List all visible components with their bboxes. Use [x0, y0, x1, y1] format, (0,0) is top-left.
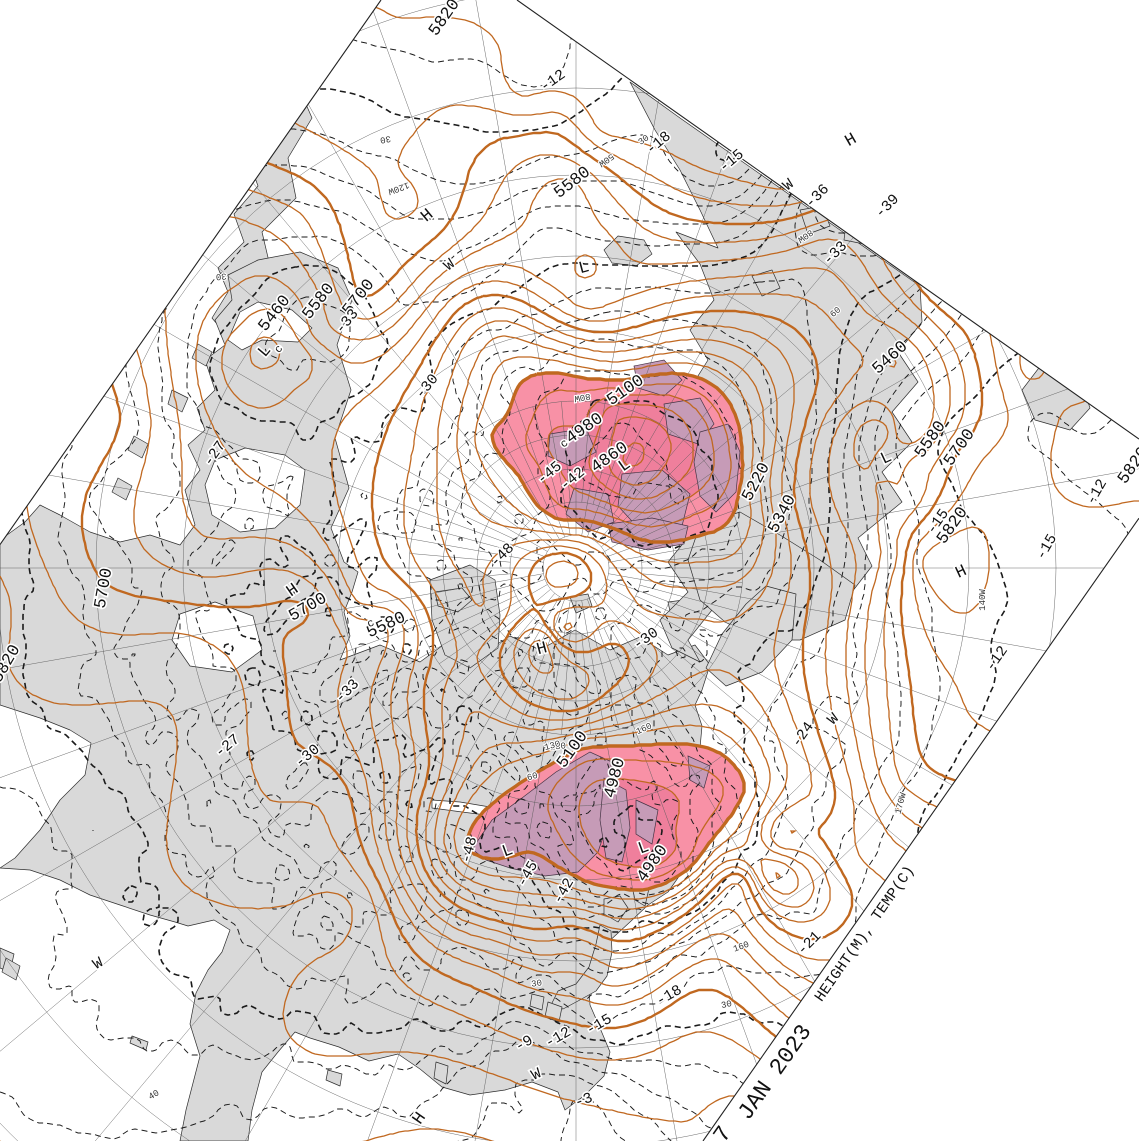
svg-text:30: 30 — [215, 271, 227, 282]
svg-text:30: 30 — [379, 133, 391, 145]
svg-text:140W: 140W — [978, 589, 988, 611]
svg-text:30: 30 — [531, 978, 543, 989]
